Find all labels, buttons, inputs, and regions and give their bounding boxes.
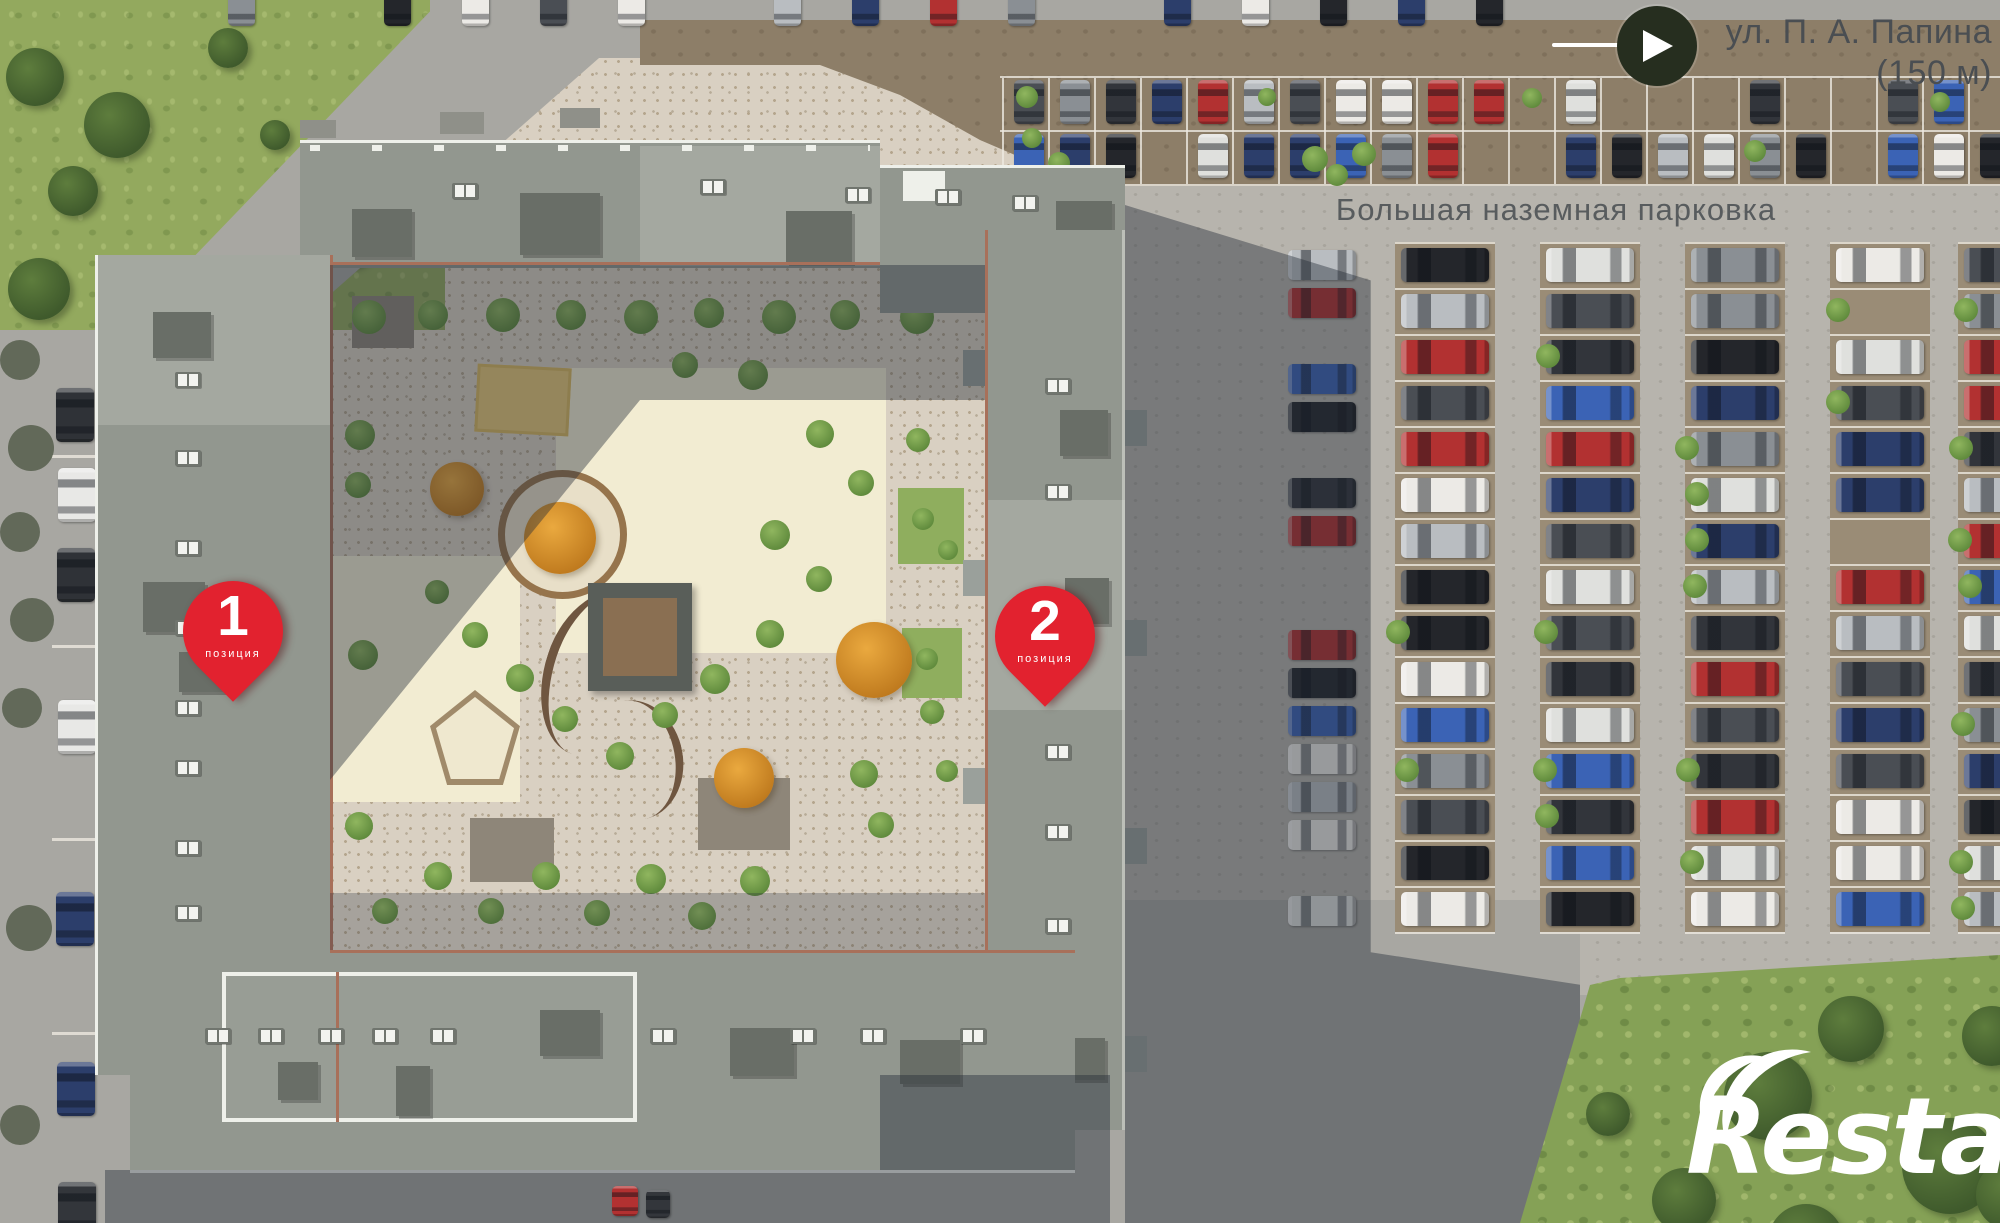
car [1546, 248, 1634, 282]
car [1288, 744, 1356, 774]
car [1198, 134, 1228, 178]
stall-line [1646, 78, 1648, 184]
bush [1016, 86, 1038, 108]
street-name: ул. П. А. Папина [1726, 12, 1992, 53]
roof-vent [845, 187, 871, 203]
stall-line [1278, 78, 1280, 184]
stall-line [1830, 564, 1930, 566]
car [1401, 524, 1489, 558]
car [1836, 570, 1924, 604]
car [1836, 616, 1924, 650]
stall-line [1685, 564, 1785, 566]
stall-line [1958, 564, 2000, 566]
bush [486, 298, 520, 332]
bush [756, 620, 784, 648]
bush [1522, 88, 1542, 108]
balcony [963, 560, 985, 596]
stall-line [1540, 932, 1640, 934]
roof-vent [790, 1028, 816, 1044]
bush [636, 864, 666, 894]
car [1546, 432, 1634, 466]
car [57, 1062, 95, 1116]
stall-line [1395, 288, 1495, 290]
street-distance: (150 м) [1726, 53, 1992, 94]
tree [1586, 1092, 1630, 1136]
pin-number: 2 [995, 593, 1095, 650]
roof-structure [730, 1028, 794, 1076]
car [1691, 432, 1779, 466]
street-sign: ул. П. А. Папина (150 м) [1726, 12, 1992, 94]
car [1401, 340, 1489, 374]
car [1796, 134, 1826, 178]
bush [1930, 92, 1950, 112]
stall-line [1958, 380, 2000, 382]
stall-line [1395, 564, 1495, 566]
restate-swoosh-icon [1676, 1032, 1846, 1162]
roof-vent [452, 183, 478, 199]
stall-line [1140, 78, 1142, 184]
stall-line [1685, 426, 1785, 428]
bush [848, 470, 874, 496]
roof-vent [175, 372, 201, 388]
stall-line [1685, 380, 1785, 382]
bush [738, 360, 768, 390]
street-direction-button[interactable] [1617, 6, 1697, 86]
car [1290, 80, 1320, 124]
roof-vent [175, 540, 201, 556]
bench-1 [440, 112, 484, 134]
car [1566, 80, 1596, 124]
stall-line [1395, 472, 1495, 474]
bush [868, 812, 894, 838]
roof-vent [175, 450, 201, 466]
car [618, 0, 645, 26]
car [1401, 662, 1489, 696]
stall-line [1958, 334, 2000, 336]
bush [506, 664, 534, 692]
stall-line [1958, 426, 2000, 428]
pin-number: 1 [183, 588, 283, 645]
car [1836, 754, 1924, 788]
stall-line [1508, 78, 1510, 184]
bush [740, 866, 770, 896]
tree-shade [2, 688, 42, 728]
stall-line [1540, 426, 1640, 428]
car [1336, 80, 1366, 124]
car [1691, 892, 1779, 926]
roof-vent [1045, 918, 1071, 934]
car [1691, 708, 1779, 742]
car [1546, 386, 1634, 420]
stall-line [1370, 78, 1372, 184]
brick-seam [336, 972, 339, 1122]
bush [906, 428, 930, 452]
stall-line [1540, 288, 1640, 290]
balcony [1125, 1036, 1147, 1072]
roof-structure [540, 1010, 600, 1056]
stall-line [1958, 656, 2000, 658]
car [1836, 892, 1924, 926]
car [384, 0, 411, 26]
stall-line [1554, 78, 1556, 184]
roof-vent [1045, 484, 1071, 500]
stall-line [1692, 78, 1694, 184]
stall-line [1395, 334, 1495, 336]
car [1546, 892, 1634, 926]
stall-line [1395, 242, 1495, 244]
map-pin-position-1[interactable]: 1 позиция [183, 581, 283, 706]
bush [1022, 128, 1042, 148]
car [1288, 364, 1356, 394]
parking-column [1685, 242, 1785, 932]
roof-vent [430, 1028, 456, 1044]
bush [912, 508, 934, 530]
stall-line [1186, 78, 1188, 184]
car [1320, 0, 1347, 26]
car [1836, 432, 1924, 466]
stall-line [1540, 610, 1640, 612]
building-south [130, 950, 1075, 1173]
roof-vent [175, 760, 201, 776]
bush [345, 420, 375, 450]
car [1546, 800, 1634, 834]
roof-light-section [98, 255, 330, 425]
stall-line [1830, 794, 1930, 796]
autumn-tree [836, 622, 912, 698]
car [228, 0, 255, 26]
tree [6, 48, 64, 106]
parapet-dashes [310, 145, 870, 151]
stall-line [1000, 130, 2000, 132]
stall-line [1685, 288, 1785, 290]
bush [1258, 88, 1276, 106]
stall-line [1830, 932, 1930, 934]
tree-shade [8, 425, 54, 471]
car [1288, 516, 1356, 546]
bush [352, 300, 386, 334]
roof-vent [1012, 195, 1038, 211]
car [1546, 754, 1634, 788]
car [1964, 662, 2000, 696]
car [1836, 708, 1924, 742]
bush [760, 520, 790, 550]
bush [552, 706, 578, 732]
east-road [1110, 900, 1580, 1223]
car [1398, 0, 1425, 26]
car [1691, 340, 1779, 374]
stall-line [1540, 748, 1640, 750]
balcony [1125, 828, 1147, 864]
car [1964, 386, 2000, 420]
roof-vent [1045, 744, 1071, 760]
bush [1954, 298, 1978, 322]
stall-line [1958, 840, 2000, 842]
stall-line [1395, 518, 1495, 520]
roof-vent [960, 1028, 986, 1044]
stall-line [1830, 288, 1930, 290]
stall-line [1830, 472, 1930, 474]
roof-vent [1045, 378, 1071, 394]
tree-shade [10, 598, 54, 642]
bush [345, 472, 371, 498]
stall-line [1958, 794, 2000, 796]
bush [532, 862, 560, 890]
car [1934, 134, 1964, 178]
tree-shade [0, 340, 40, 380]
bench-2 [560, 108, 600, 128]
car [1401, 432, 1489, 466]
shadow-courtyard-south [330, 893, 985, 950]
stall-line [1685, 656, 1785, 658]
car [1288, 820, 1356, 850]
stall-line [1395, 702, 1495, 704]
bush [606, 742, 634, 770]
car [1008, 0, 1035, 26]
bush [1680, 850, 1704, 874]
car [1288, 402, 1356, 432]
stall-line [1685, 840, 1785, 842]
car [1691, 800, 1779, 834]
stall-line [1395, 748, 1495, 750]
tree-shade [0, 1105, 40, 1145]
direction-line [1552, 43, 1622, 47]
pin-caption: позиция [995, 653, 1095, 665]
bush [1302, 146, 1328, 172]
tree [260, 120, 290, 150]
car [1198, 80, 1228, 124]
roof-structure [786, 211, 852, 263]
stall-line [1830, 610, 1930, 612]
stall-line [1462, 78, 1464, 184]
stall-line [1830, 656, 1930, 658]
car [646, 1190, 670, 1218]
bush [938, 540, 958, 560]
car [58, 468, 96, 522]
balcony [1125, 410, 1147, 446]
stall-line [1540, 886, 1640, 888]
car [1546, 708, 1634, 742]
stall-line [1958, 886, 2000, 888]
balcony [963, 768, 985, 804]
bush [830, 300, 860, 330]
bush [348, 640, 378, 670]
stall-line [1685, 932, 1785, 934]
car [540, 0, 567, 26]
parking-column [1395, 242, 1495, 932]
car [56, 892, 94, 946]
bush [345, 812, 373, 840]
bush [556, 300, 586, 330]
car [1836, 662, 1924, 696]
car [1964, 478, 2000, 512]
car [1658, 134, 1688, 178]
roof-structure [1060, 410, 1108, 456]
roof-vent [205, 1028, 231, 1044]
roof-vent [860, 1028, 886, 1044]
bush [1951, 896, 1975, 920]
tree [48, 166, 98, 216]
bush [1685, 528, 1709, 552]
stall-line [1540, 334, 1640, 336]
stall-line [1958, 932, 2000, 934]
car [1164, 0, 1191, 26]
car [1288, 706, 1356, 736]
bush [694, 298, 724, 328]
roof-vent [175, 840, 201, 856]
bush [424, 862, 452, 890]
tree [84, 92, 150, 158]
stall-line [1958, 518, 2000, 520]
stall-line [1232, 78, 1234, 184]
tree [8, 258, 70, 320]
car [1106, 80, 1136, 124]
stall-line [1540, 656, 1640, 658]
bush [1949, 436, 1973, 460]
bush [762, 300, 796, 334]
roof-structure [396, 1066, 430, 1116]
stall-line [1958, 610, 2000, 612]
bush [1675, 436, 1699, 460]
car [1836, 800, 1924, 834]
car [1060, 80, 1090, 124]
car [1691, 248, 1779, 282]
stall-line [1540, 564, 1640, 566]
stall-line [1830, 886, 1930, 888]
roof-vent [1045, 824, 1071, 840]
tree [208, 28, 248, 68]
bush [418, 300, 448, 330]
stall-line [1540, 380, 1640, 382]
car [1836, 846, 1924, 880]
balcony [1125, 620, 1147, 656]
stall-line [1685, 886, 1785, 888]
car [1288, 782, 1356, 812]
stall-line [1685, 518, 1785, 520]
stall-line [1395, 610, 1495, 612]
site-plan-map: 1 позиция 2 позиция ул. П. А. Папина (15… [0, 0, 2000, 1223]
car [1836, 248, 1924, 282]
stall-line [1830, 426, 1930, 428]
stall-line [1540, 242, 1640, 244]
roof-structure [900, 1040, 960, 1084]
roof-structure [520, 193, 600, 255]
stall-line [1685, 472, 1785, 474]
stall-line [1685, 702, 1785, 704]
stall-line [1324, 78, 1326, 184]
bush [850, 760, 878, 788]
car [1401, 846, 1489, 880]
car [1980, 134, 2000, 178]
car [1888, 134, 1918, 178]
bush [1744, 140, 1766, 162]
car [1836, 478, 1924, 512]
roof-vent [318, 1028, 344, 1044]
stall-line [1395, 380, 1495, 382]
bush [1826, 390, 1850, 414]
roof-vent [650, 1028, 676, 1044]
car [1546, 846, 1634, 880]
stall-line [1395, 932, 1495, 934]
car [1288, 478, 1356, 508]
car [1546, 616, 1634, 650]
bush [916, 648, 938, 670]
car [1691, 754, 1779, 788]
car [1288, 896, 1356, 926]
car [58, 700, 96, 754]
car [1546, 662, 1634, 696]
stall-line [1395, 840, 1495, 842]
parking-column [1830, 242, 1930, 932]
car [1964, 248, 2000, 282]
roof-vent [258, 1028, 284, 1044]
roof-structure [153, 312, 211, 358]
car [774, 0, 801, 26]
arrow-right-icon [1643, 30, 1673, 62]
car [1428, 80, 1458, 124]
car [1964, 340, 2000, 374]
bush [462, 622, 488, 648]
bush [1352, 142, 1376, 166]
bush [1949, 850, 1973, 874]
bush [1386, 620, 1410, 644]
car [1964, 616, 2000, 650]
car [1401, 248, 1489, 282]
car [1401, 570, 1489, 604]
map-pin-position-2[interactable]: 2 позиция [995, 586, 1095, 711]
bush [936, 760, 958, 782]
stall-line [1540, 518, 1640, 520]
car [1382, 80, 1412, 124]
car [1401, 294, 1489, 328]
stall-line [1958, 702, 2000, 704]
car [1836, 340, 1924, 374]
car [1401, 892, 1489, 926]
car [1691, 616, 1779, 650]
car [1288, 668, 1356, 698]
stall-line [1416, 78, 1418, 184]
car [1401, 708, 1489, 742]
car [1401, 616, 1489, 650]
car [1691, 846, 1779, 880]
stall-line [1958, 242, 2000, 244]
car [930, 0, 957, 26]
car [1566, 134, 1596, 178]
stall-line [1685, 610, 1785, 612]
stall-line [1395, 794, 1495, 796]
roof-structure [352, 209, 412, 257]
stall-line [1395, 426, 1495, 428]
car [1964, 754, 2000, 788]
bush [700, 664, 730, 694]
car [1546, 570, 1634, 604]
stall-line [1830, 748, 1930, 750]
bush [1326, 164, 1348, 186]
bush [1951, 712, 1975, 736]
stall-line [1540, 840, 1640, 842]
car [612, 1186, 638, 1216]
bush [425, 580, 449, 604]
stall-line [1830, 518, 1930, 520]
bush [806, 566, 832, 592]
car [1691, 662, 1779, 696]
car [1546, 478, 1634, 512]
roof-vent [175, 905, 201, 921]
stall-line [1830, 242, 1930, 244]
car [1612, 134, 1642, 178]
bush [806, 420, 834, 448]
brick-edge [330, 950, 1075, 953]
roof-vent [935, 189, 961, 205]
